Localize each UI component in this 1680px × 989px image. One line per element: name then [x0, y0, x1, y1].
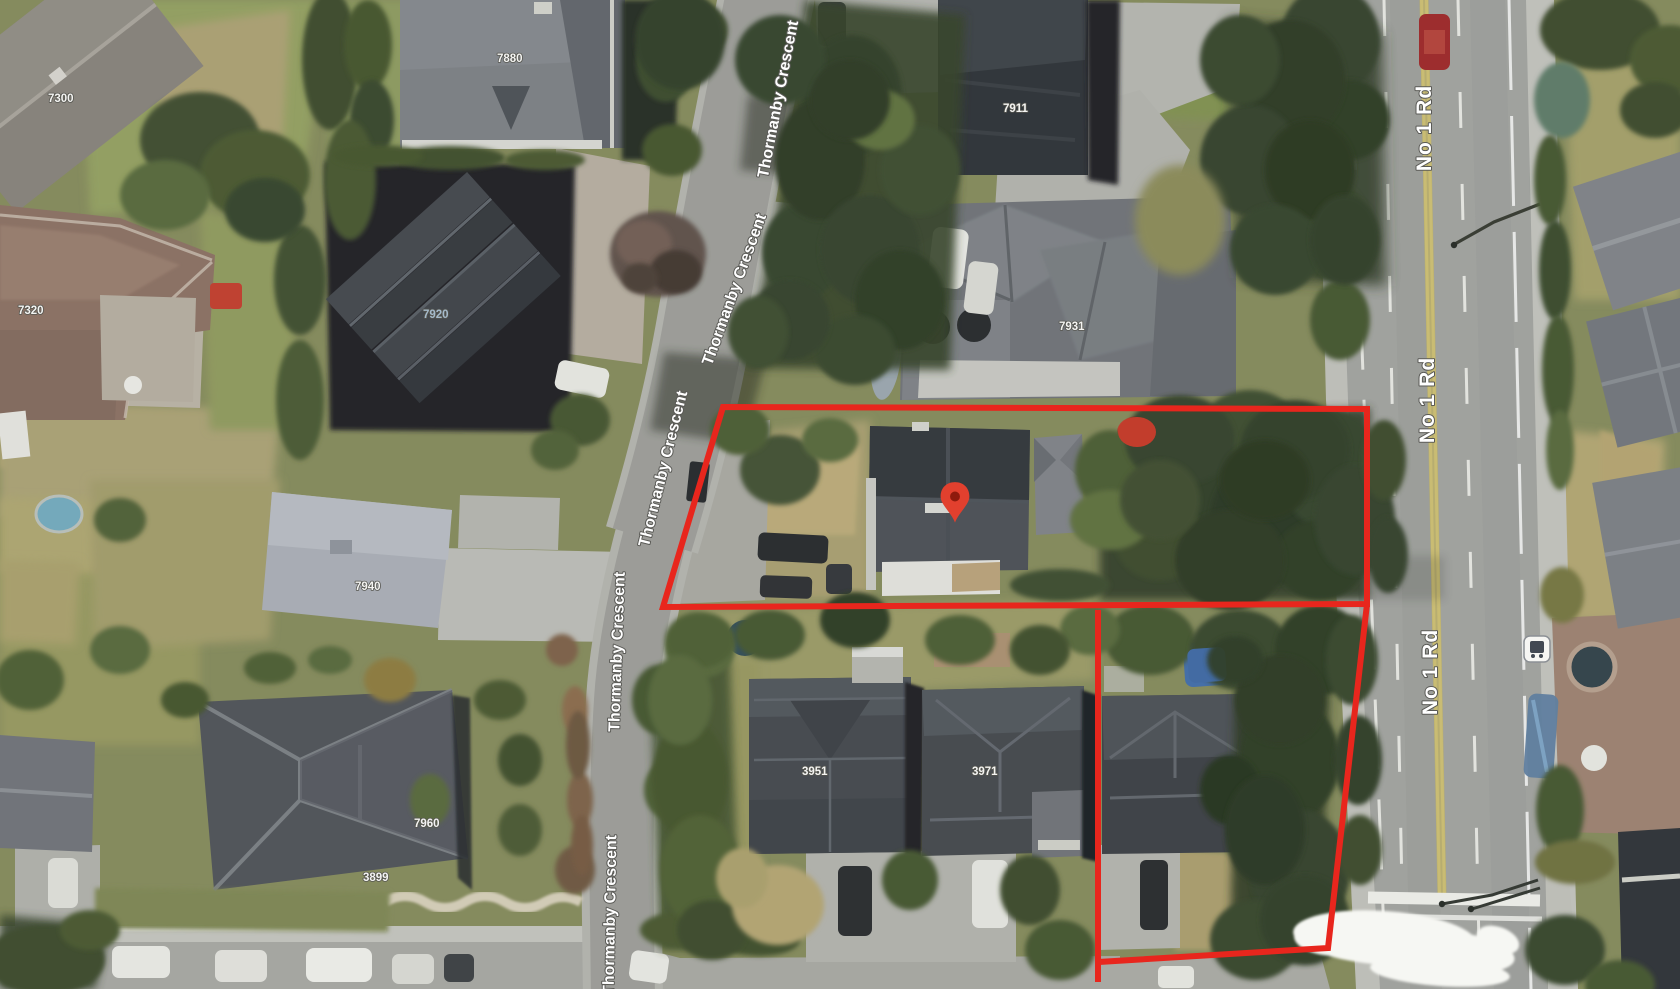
svg-text:3899: 3899 [363, 872, 389, 884]
svg-text:7911: 7911 [1003, 103, 1029, 115]
svg-text:Thormanby Crescent: Thormanby Crescent [601, 834, 621, 989]
svg-text:No 1 Rd: No 1 Rd [1416, 357, 1439, 443]
svg-text:7920: 7920 [423, 309, 449, 321]
svg-text:7960: 7960 [414, 818, 440, 830]
svg-text:3951: 3951 [802, 766, 828, 778]
svg-text:7320: 7320 [18, 305, 44, 317]
svg-text:7940: 7940 [355, 581, 381, 593]
svg-text:No 1 Rd: No 1 Rd [1419, 629, 1442, 715]
svg-text:7931: 7931 [1059, 321, 1085, 333]
svg-text:3971: 3971 [972, 766, 998, 778]
svg-text:7300: 7300 [48, 93, 74, 105]
svg-text:7880: 7880 [497, 53, 523, 65]
svg-text:No 1 Rd: No 1 Rd [1413, 85, 1436, 171]
